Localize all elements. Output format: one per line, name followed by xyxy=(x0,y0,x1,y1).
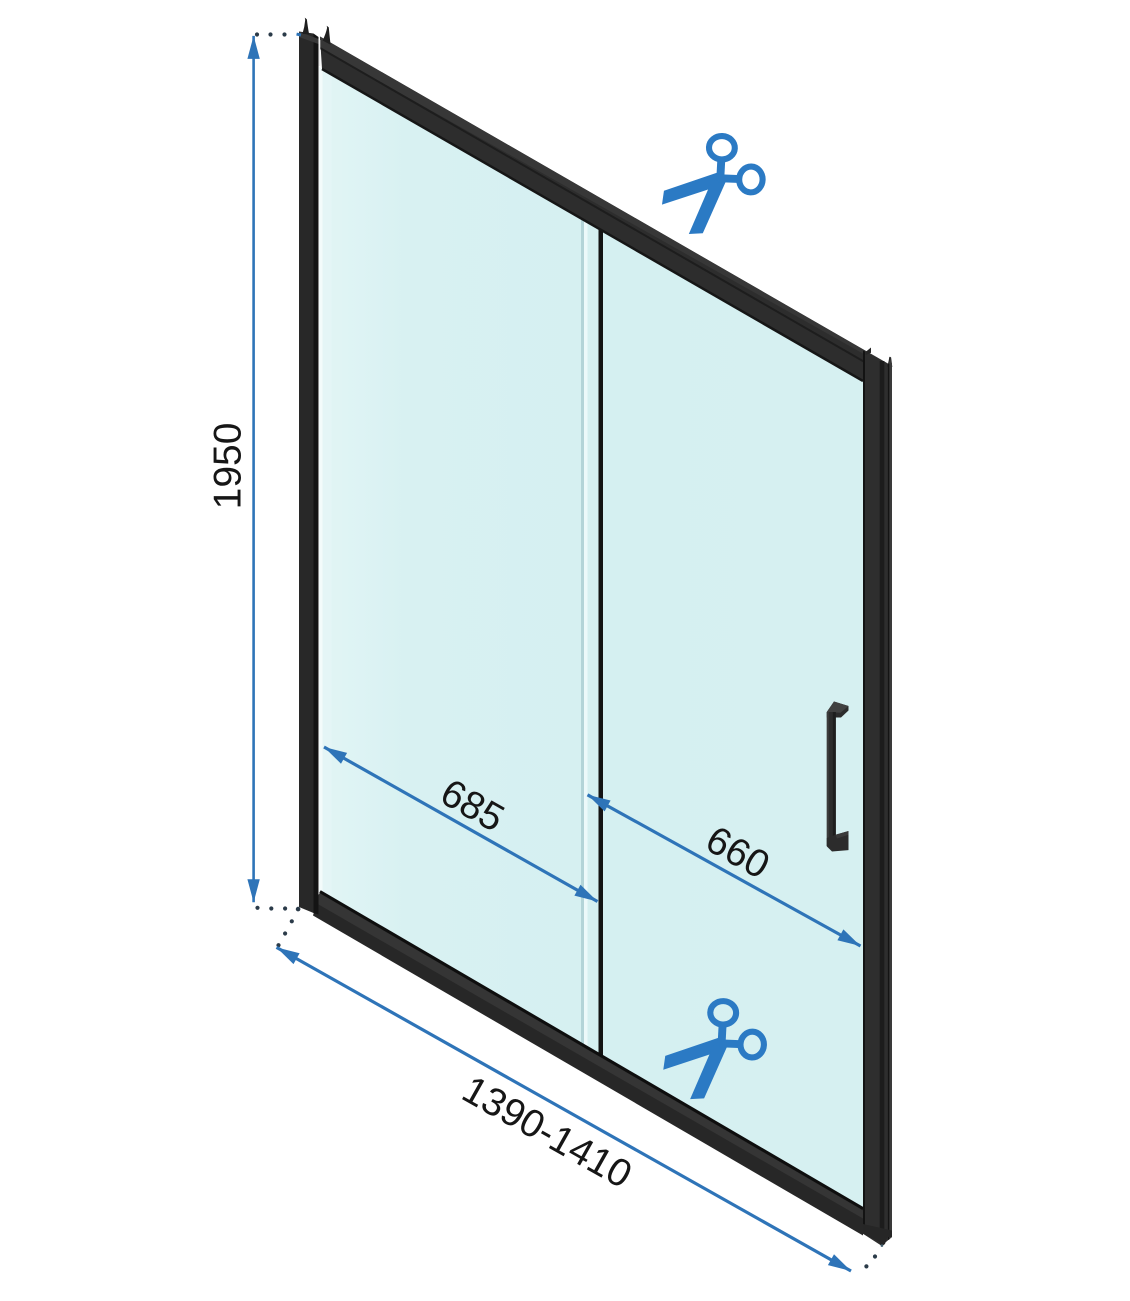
svg-text:1950: 1950 xyxy=(207,423,250,510)
